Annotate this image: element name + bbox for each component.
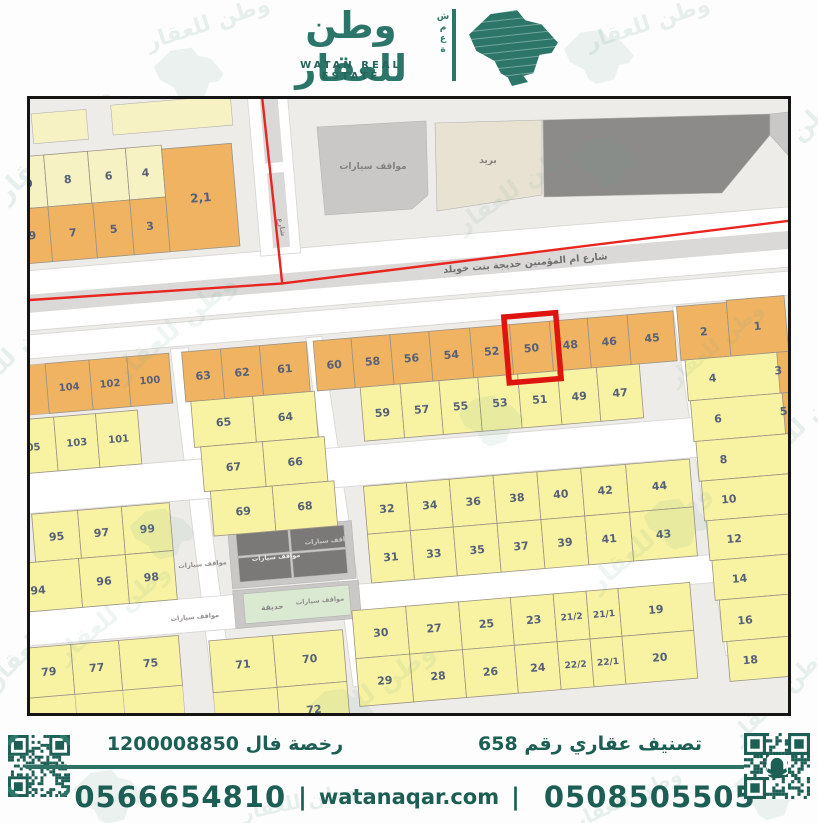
plot-label-67: 67 (225, 460, 241, 474)
mark-letter: ع (440, 34, 446, 44)
plot-label-75: 75 (142, 656, 158, 670)
plot-label-14: 14 (731, 572, 748, 586)
plot-14 (712, 552, 788, 600)
plot-label-66: 66 (287, 455, 304, 469)
plot-label-9: 9 (30, 229, 37, 243)
plot-16 (719, 592, 788, 642)
plot-label-2,1: 2,1 (190, 190, 212, 206)
footer-divider (25, 765, 793, 769)
brand-mark-letters: شمعة (436, 12, 450, 55)
plot-label-4: 4 (708, 371, 717, 385)
phone-number-right: 0508505505 (544, 780, 756, 814)
plot-label-36: 36 (465, 495, 482, 509)
plot-label-5: 5 (779, 405, 788, 419)
plot-label-5: 5 (109, 223, 118, 237)
classification-text: تصنيف عقاري رقم 658 (445, 733, 735, 755)
plot-label-49: 49 (571, 389, 587, 403)
footer-contact-row: 0566654810 | watanaqar.com | 0508505505 (85, 775, 733, 819)
plot-label-58: 58 (364, 355, 380, 369)
plot-label-70: 70 (302, 652, 319, 666)
plot-label-3: 3 (774, 364, 783, 378)
plot-label-6: 6 (714, 412, 723, 426)
plot-label-59: 59 (374, 406, 390, 420)
plot-8 (696, 434, 788, 482)
plot-label-8: 8 (63, 173, 72, 187)
plot-label-47: 47 (612, 386, 628, 400)
qr-code-right-snapchat (744, 733, 810, 803)
plot-label-104: 104 (58, 381, 80, 394)
header: وطن للعقار WATAN REAL ESTATE شمعة (0, 0, 818, 96)
separator: | (298, 783, 307, 811)
plot-label-77: 77 (89, 661, 105, 675)
plot-label-45: 45 (644, 331, 660, 345)
plot-label-41: 41 (601, 532, 617, 546)
svg-text:حديقة: حديقة (261, 602, 284, 613)
plot-label-102: 102 (99, 378, 121, 391)
plot-label-57: 57 (414, 403, 430, 417)
plot-map-image: 1086497532,11041021006362616058565452504… (27, 96, 791, 716)
mark-letter: م (440, 23, 447, 33)
logo-divider-bar (452, 9, 456, 81)
plot-label-26: 26 (482, 665, 499, 679)
website-text: watanaqar.com (319, 785, 499, 809)
plot-label-24: 24 (530, 661, 547, 675)
plot-label-34: 34 (422, 498, 439, 512)
plot-label-100: 100 (139, 375, 161, 388)
plot-label-38: 38 (509, 491, 525, 505)
plot-label-44: 44 (651, 479, 668, 493)
plot-label-94: 94 (30, 583, 47, 597)
plot-label-103: 103 (66, 437, 88, 450)
plot-label-63: 63 (195, 369, 211, 383)
plot-label-97: 97 (93, 526, 109, 540)
plot-label-50: 50 (523, 341, 540, 355)
plot-label-22/1: 22/1 (597, 657, 620, 669)
plot-label-37: 37 (513, 539, 529, 553)
plot-label-71: 71 (235, 657, 251, 671)
plot-label-10: 10 (721, 492, 738, 506)
plot-label-56: 56 (403, 351, 420, 365)
plot-label-62: 62 (234, 366, 250, 380)
separator: | (511, 783, 520, 811)
plot-label-22/2: 22/2 (564, 660, 587, 672)
svg-text:مواقف سيارات: مواقف سيارات (339, 162, 406, 172)
plot-label-42: 42 (597, 484, 613, 498)
plot-12 (707, 513, 788, 561)
phone-number-left: 0566654810 (74, 780, 286, 814)
plot-label-12: 12 (726, 532, 742, 546)
plot-label-6: 6 (104, 169, 113, 183)
poster: وطن للعقاروطن للعقاروطن للعقاروطن للعقار… (0, 0, 818, 823)
plot-label-18: 18 (742, 653, 758, 667)
plot-label-21/1: 21/1 (593, 609, 616, 621)
plot-label-101: 101 (108, 433, 130, 446)
plot-label-31: 31 (383, 550, 399, 564)
plot-label-61: 61 (277, 362, 293, 376)
plot-label-39: 39 (557, 536, 573, 550)
plot-label-69: 69 (235, 504, 251, 518)
plot-label-68: 68 (297, 499, 313, 513)
plot-label-23: 23 (526, 613, 542, 627)
plot-label-52: 52 (483, 345, 499, 359)
plot-label-65: 65 (215, 415, 231, 429)
fal-license-text: رخصة فال 1200008850 (70, 733, 380, 755)
plot-label-60: 60 (326, 358, 343, 372)
saudi-map-logo-icon (462, 4, 564, 88)
plot-label-25: 25 (478, 617, 494, 631)
plot-label-19: 19 (648, 603, 664, 617)
plot-label-79: 79 (41, 665, 57, 679)
plot-label-27: 27 (426, 621, 442, 635)
brand-english: WATAN REAL ESTATE (268, 60, 434, 82)
plot-label-7: 7 (68, 226, 77, 240)
plot-label-28: 28 (430, 669, 446, 683)
plot-label-32: 32 (379, 502, 395, 516)
plot-label-20: 20 (652, 651, 669, 665)
mark-letter: ش (437, 12, 449, 22)
svg-text:بريد: بريد (479, 156, 497, 166)
plot-map-svg: 1086497532,11041021006362616058565452504… (30, 99, 788, 713)
plot-label-40: 40 (553, 487, 570, 501)
plot-label-95: 95 (48, 530, 64, 544)
plot-label-3: 3 (146, 220, 155, 234)
plot-label-64: 64 (277, 410, 294, 424)
plot-label-16: 16 (737, 613, 754, 627)
plot-label-48: 48 (562, 338, 578, 352)
plot-label-35: 35 (469, 543, 485, 557)
plot-label-30: 30 (373, 626, 390, 640)
plot-label-4: 4 (141, 166, 150, 180)
plot-6 (690, 393, 785, 442)
plot-label-105: 105 (30, 442, 41, 455)
plot-label-46: 46 (601, 335, 618, 349)
plot-label-96: 96 (96, 574, 113, 588)
plot-label-51: 51 (532, 393, 548, 407)
plot-label-21/2: 21/2 (560, 612, 583, 624)
mark-letter: ة (440, 45, 445, 55)
plot-label-33: 33 (426, 547, 442, 561)
plot-label-54: 54 (443, 348, 460, 362)
plot-label-8: 8 (719, 453, 728, 467)
footer: رخصة فال 1200008850 تصنيف عقاري رقم 658 … (0, 717, 818, 823)
